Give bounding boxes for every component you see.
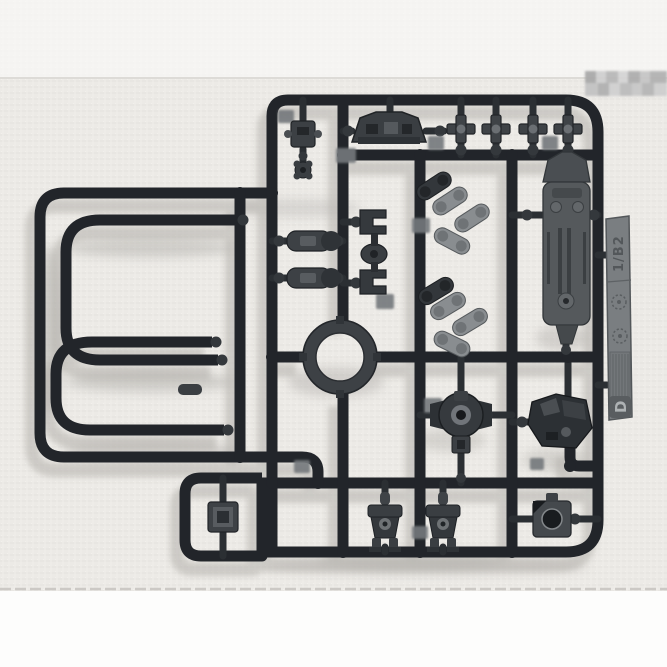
bottom-white-band xyxy=(0,591,667,667)
foot-part xyxy=(528,394,592,448)
tab-code-text: 1/B2 xyxy=(612,235,627,272)
flat-plate-part xyxy=(543,152,590,344)
sprue-runner-photo: 1/B2 D xyxy=(0,0,667,667)
tab-letter-text: D xyxy=(612,401,630,413)
box-part-subframe xyxy=(208,502,238,532)
hull-plate-part xyxy=(352,112,426,144)
runner-id-tab: 1/B2 D xyxy=(606,216,632,420)
small-capsule-part xyxy=(178,384,202,395)
watermark-blur xyxy=(585,71,667,96)
product-photo: 1/B2 D xyxy=(0,0,667,667)
